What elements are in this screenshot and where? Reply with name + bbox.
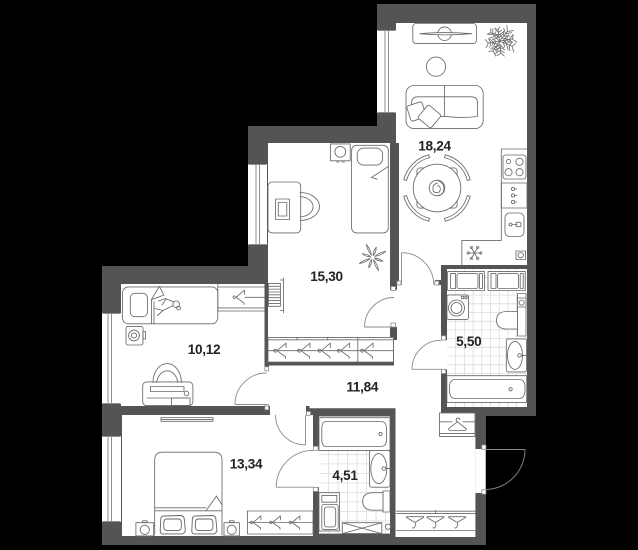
svg-text:11,84: 11,84 [346, 379, 379, 394]
svg-text:18,24: 18,24 [418, 138, 451, 153]
svg-text:13,34: 13,34 [230, 456, 263, 471]
svg-text:4,51: 4,51 [332, 468, 358, 483]
svg-text:5,50: 5,50 [456, 334, 481, 349]
svg-text:10,12: 10,12 [188, 342, 221, 357]
svg-text:15,30: 15,30 [310, 269, 343, 284]
